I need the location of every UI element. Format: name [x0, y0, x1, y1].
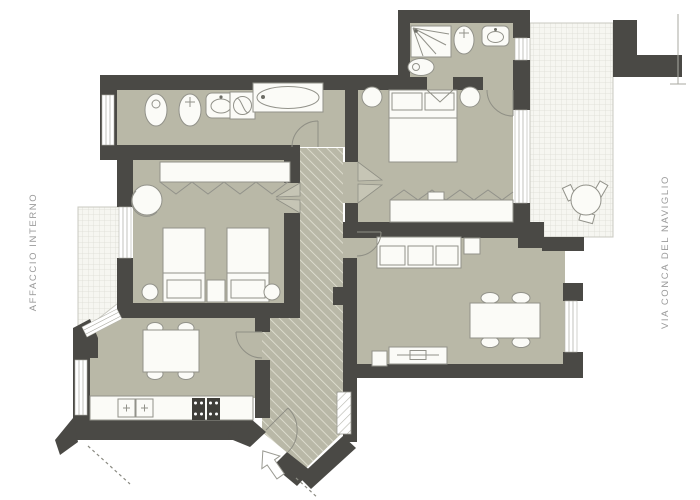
wall-bed2-right	[284, 213, 300, 305]
washbasin-tap	[494, 28, 497, 31]
stove	[207, 398, 220, 420]
window-bathroom-main	[102, 95, 114, 145]
wall-entry-left	[228, 418, 266, 447]
bed-pillow	[167, 280, 201, 298]
wall-pillar	[333, 287, 355, 305]
nightstand	[207, 280, 225, 302]
wall-bath2-top	[398, 10, 530, 23]
niche-radiator	[337, 392, 351, 434]
side-table	[464, 238, 480, 254]
side-table	[460, 87, 480, 107]
door-gap-floor	[343, 162, 358, 203]
window-living-room	[565, 301, 577, 352]
bed-pillow	[231, 280, 265, 298]
washbasin-tap	[219, 95, 222, 98]
terrace-table	[571, 185, 601, 215]
wall-hall-right	[343, 258, 357, 372]
window-bedroom-twin	[119, 207, 131, 258]
shower-drain	[414, 29, 418, 33]
bidet	[408, 59, 434, 76]
armchair	[132, 185, 162, 215]
wall-bed2-left	[117, 258, 133, 305]
wall-living-right	[563, 283, 583, 301]
wardrobe	[390, 200, 513, 222]
kitchen-table	[143, 330, 199, 372]
bidet	[145, 94, 167, 126]
wardrobe	[160, 162, 290, 182]
wall-bed2-left	[117, 145, 133, 207]
stove	[192, 398, 205, 420]
wall-bath2-left	[398, 10, 410, 90]
wall-terrace-corner	[613, 20, 682, 77]
wall-master-left	[345, 203, 358, 225]
wall-kitchen-right	[255, 360, 270, 418]
stool	[264, 284, 280, 300]
wall-living-step	[518, 222, 544, 248]
wall-master-left	[345, 75, 358, 162]
window-bathroom-second	[515, 38, 527, 60]
wall-master-right	[513, 88, 530, 110]
floor-plan-drawing: AFFACCIO INTERNO VIA CONCA DEL NAVIGLIO	[0, 0, 700, 500]
wall-bath2-right	[513, 23, 530, 38]
chair	[512, 293, 530, 304]
stool	[142, 284, 158, 300]
kitchen-counter	[90, 396, 253, 420]
dashed-boundary	[88, 446, 130, 484]
wall-living-topright	[542, 237, 584, 251]
label-left-street: AFFACCIO INTERNO	[28, 193, 39, 312]
dining-table	[470, 303, 540, 338]
window-kitchen-left	[75, 360, 87, 415]
window-master-bedroom	[515, 110, 527, 203]
sofa	[377, 237, 461, 268]
bed-pillow	[392, 93, 422, 110]
wall-master-right	[513, 203, 530, 225]
wall-bath2-right	[513, 60, 530, 90]
wall-living-top	[343, 222, 530, 238]
wall-bath2-bottom	[410, 77, 427, 90]
wall-kitchen-bottom	[73, 418, 233, 440]
side-table	[372, 351, 387, 366]
wardrobe-knob	[428, 192, 444, 200]
chair	[481, 293, 499, 304]
wall-bed2-bottom	[117, 303, 300, 318]
wall-kitchen-right	[255, 318, 270, 332]
bathtub-drain	[261, 95, 265, 99]
side-table	[362, 87, 382, 107]
floor-plan-page: AFFACCIO INTERNO VIA CONCA DEL NAVIGLIO	[0, 0, 700, 500]
label-right-street: VIA CONCA DEL NAVIGLIO	[660, 175, 671, 329]
